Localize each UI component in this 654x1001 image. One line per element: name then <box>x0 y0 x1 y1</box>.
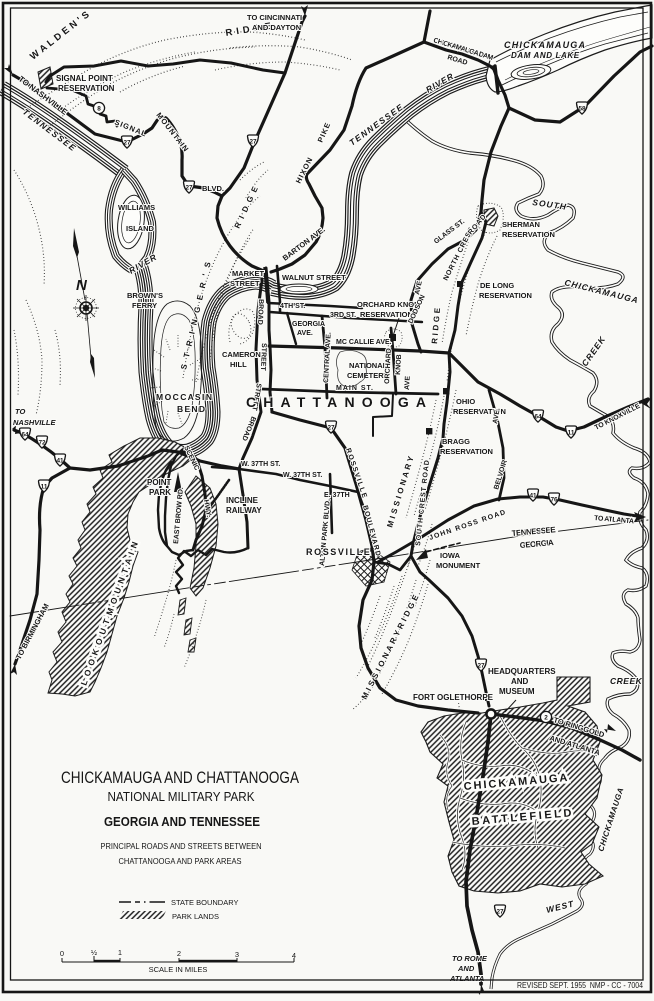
svg-text:TO CINCINNATI: TO CINCINNATI <box>247 13 302 22</box>
svg-text:PARK: PARK <box>149 488 171 497</box>
svg-text:72: 72 <box>38 439 46 446</box>
svg-text:SIGNAL POINT: SIGNAL POINT <box>56 74 113 83</box>
svg-text:41: 41 <box>529 492 537 499</box>
svg-text:ATLANTA: ATLANTA <box>449 974 484 983</box>
svg-text:4: 4 <box>292 951 296 960</box>
svg-text:4TH ST.: 4TH ST. <box>280 303 305 310</box>
svg-text:½: ½ <box>91 948 98 957</box>
svg-text:CHICKAMAUGA AND CHATTANOOGA: CHICKAMAUGA AND CHATTANOOGA <box>61 768 300 787</box>
svg-text:27: 27 <box>185 184 193 191</box>
svg-text:TO: TO <box>15 407 25 416</box>
svg-text:MUSEUM: MUSEUM <box>499 687 535 696</box>
svg-text:CHICKAMAUGA: CHICKAMAUGA <box>504 40 586 50</box>
svg-text:RAILWAY: RAILWAY <box>226 506 262 515</box>
svg-text:GEORGIA AND TENNESSEE: GEORGIA AND TENNESSEE <box>104 815 260 829</box>
svg-text:ORCHARD KNOB: ORCHARD KNOB <box>357 300 420 309</box>
svg-text:41: 41 <box>56 457 64 464</box>
svg-text:MAIN ST.: MAIN ST. <box>336 385 374 392</box>
svg-text:FORT OGLETHORPE: FORT OGLETHORPE <box>413 693 494 702</box>
svg-text:FERRY: FERRY <box>132 301 157 310</box>
svg-text:RESERVATION: RESERVATION <box>479 291 532 300</box>
svg-text:W. 37TH ST.: W. 37TH ST. <box>283 472 322 479</box>
svg-text:27: 27 <box>123 139 131 146</box>
svg-text:HILL: HILL <box>230 360 247 369</box>
svg-text:ROSSVILLE: ROSSVILLE <box>306 547 371 557</box>
svg-text:CEMETERY: CEMETERY <box>347 371 388 380</box>
svg-text:MARKET: MARKET <box>232 269 264 278</box>
svg-text:KNOB: KNOB <box>395 354 403 375</box>
svg-text:CHATTANOOGA: CHATTANOOGA <box>246 394 426 410</box>
svg-text:11: 11 <box>41 483 48 490</box>
svg-text:WALNUT STREET: WALNUT STREET <box>282 273 346 282</box>
svg-text:RESERVATION: RESERVATION <box>58 84 115 93</box>
svg-text:76: 76 <box>550 496 558 503</box>
svg-text:NASHVILLE: NASHVILLE <box>13 418 57 427</box>
svg-text:BRAGG: BRAGG <box>442 437 470 446</box>
svg-text:TO ROME: TO ROME <box>452 954 488 963</box>
svg-text:AND: AND <box>511 677 529 686</box>
svg-text:ISLAND: ISLAND <box>126 224 155 233</box>
svg-text:PRINCIPAL ROADS AND STREETS: PRINCIPAL ROADS AND STREETS BETWEEN <box>101 841 262 851</box>
svg-text:M O C C A S I N: M O C C A S I N <box>156 392 212 402</box>
svg-text:0: 0 <box>60 949 64 958</box>
svg-text:STATE BOUNDARY: STATE BOUNDARY <box>171 898 239 907</box>
svg-text:B E N D: B E N D <box>177 404 205 414</box>
svg-text:2: 2 <box>177 949 181 958</box>
svg-text:STREET: STREET <box>259 343 267 372</box>
svg-text:2: 2 <box>544 714 548 721</box>
svg-text:OHIO: OHIO <box>456 397 475 406</box>
svg-text:8: 8 <box>97 105 101 112</box>
svg-text:CREEK: CREEK <box>610 676 643 686</box>
svg-text:3RD ST.: 3RD ST. <box>330 312 356 319</box>
svg-text:AVE.: AVE. <box>297 330 313 337</box>
svg-text:RESERVATION: RESERVATION <box>502 230 555 239</box>
svg-text:58: 58 <box>578 105 586 112</box>
svg-text:NATIONAL: NATIONAL <box>349 361 388 370</box>
svg-text:IOWA: IOWA <box>440 551 461 560</box>
svg-text:27: 27 <box>477 662 485 669</box>
svg-text:64: 64 <box>21 431 29 438</box>
svg-text:E. 37TH: E. 37TH <box>324 492 350 499</box>
svg-text:INCLINE: INCLINE <box>226 496 259 505</box>
svg-text:BLVD.: BLVD. <box>202 184 224 193</box>
svg-text:REVISED SEPT. 1955 NMP - CC -: REVISED SEPT. 1955 NMP - CC - 7004 <box>517 980 643 990</box>
svg-text:DAM AND LAKE: DAM AND LAKE <box>511 51 580 60</box>
svg-text:AND: AND <box>457 964 475 973</box>
svg-text:POINT: POINT <box>147 478 172 487</box>
svg-text:W. 37TH ST.: W. 37TH ST. <box>241 461 280 468</box>
svg-text:11: 11 <box>568 429 575 436</box>
svg-text:SHERMAN: SHERMAN <box>502 220 540 229</box>
svg-text:27: 27 <box>327 424 335 431</box>
svg-text:MONUMENT: MONUMENT <box>436 561 481 570</box>
svg-text:PARK LANDS: PARK LANDS <box>172 912 219 921</box>
svg-text:MC CALLIE AVE.: MC CALLIE AVE. <box>336 339 392 346</box>
svg-text:RESERVATION: RESERVATION <box>440 447 493 456</box>
svg-text:27: 27 <box>249 138 257 145</box>
svg-text:N: N <box>76 277 88 294</box>
svg-text:SCALE IN MILES: SCALE IN MILES <box>149 965 208 974</box>
svg-text:BROWN'S: BROWN'S <box>127 291 163 300</box>
svg-text:WILLIAMS: WILLIAMS <box>118 203 155 212</box>
svg-text:64: 64 <box>534 413 542 420</box>
svg-text:RESERVATION: RESERVATION <box>360 310 413 319</box>
svg-text:BROAD: BROAD <box>256 299 264 325</box>
svg-text:AVE: AVE <box>404 376 412 391</box>
svg-text:27: 27 <box>496 908 504 915</box>
svg-text:STREET: STREET <box>230 279 260 288</box>
svg-text:GEORGIA: GEORGIA <box>292 321 325 328</box>
svg-text:CHATTANOOGA AND PARK AREAS: CHATTANOOGA AND PARK AREAS <box>119 856 242 866</box>
svg-text:1: 1 <box>118 948 122 957</box>
svg-text:3: 3 <box>235 950 239 959</box>
svg-text:DE LONG: DE LONG <box>480 281 514 290</box>
svg-text:HEADQUARTERS: HEADQUARTERS <box>488 667 556 676</box>
svg-text:AND DAYTON: AND DAYTON <box>252 23 301 32</box>
svg-text:CAMERON: CAMERON <box>222 350 261 359</box>
svg-text:NATIONAL MILITARY PARK: NATIONAL MILITARY PARK <box>108 789 255 804</box>
